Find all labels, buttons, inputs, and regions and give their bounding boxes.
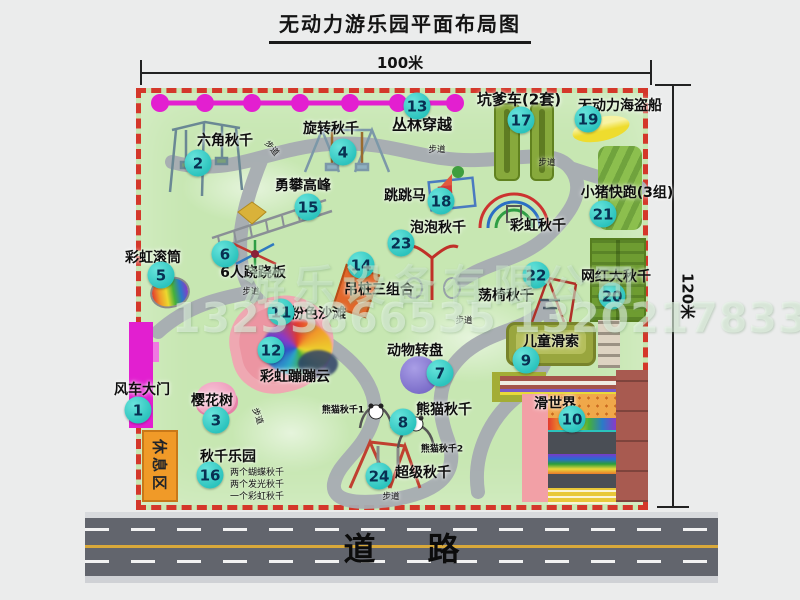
marker-22: 22 (523, 262, 550, 289)
marker-2: 2 (185, 150, 212, 177)
path-label: 步道 (382, 490, 399, 502)
rest-area-label: 休息区 (150, 439, 171, 493)
label-hanging-post-combo: 吊桩三组合 (344, 279, 414, 299)
label-rainbow-swing: 彩虹秋千 (510, 215, 566, 235)
marker-1: 1 (125, 397, 152, 424)
marker-15: 15 (295, 194, 322, 221)
label-rotary-swing: 旋转秋千 (303, 118, 359, 138)
path-label: 步道 (428, 143, 445, 155)
slide-world-icon (492, 370, 648, 502)
marker-10: 10 (559, 406, 586, 433)
label-rainbow-bounce-cloud: 彩虹蹦蹦云 (260, 366, 330, 386)
marker-23: 23 (388, 230, 415, 257)
label-windmill-gate: 风车大门 (114, 379, 170, 399)
path-label: 步道 (455, 314, 472, 326)
marker-4: 4 (330, 139, 357, 166)
swing-park-note-3: 一个彩虹秋千 (230, 489, 284, 502)
label-super-swing: 超级秋千 (395, 462, 451, 482)
marker-9: 9 (513, 347, 540, 374)
marker-18: 18 (428, 188, 455, 215)
path-label: 步道 (538, 156, 555, 168)
label-bubble-swing: 泡泡秋千 (410, 217, 466, 237)
playground-layout-map: 无动力游乐园平面布局图 100米 120米 (0, 0, 800, 600)
marker-12: 12 (258, 337, 285, 364)
windmill-gate-icon (153, 342, 159, 362)
kids-zipline-ladder-icon (598, 320, 620, 368)
label-peak-climbing: 勇攀高峰 (275, 175, 331, 195)
marker-3: 3 (203, 407, 230, 434)
marker-24: 24 (366, 463, 393, 490)
marker-20: 20 (599, 283, 626, 310)
marker-11: 11 (268, 299, 295, 326)
marker-19: 19 (575, 106, 602, 133)
path-label: 步道 (242, 285, 259, 297)
marker-6: 6 (212, 241, 239, 268)
label-panda-swing-1: 熊猫秋千1 (322, 403, 364, 416)
marker-14: 14 (348, 252, 375, 279)
marker-21: 21 (590, 201, 617, 228)
walkway-paths (0, 0, 800, 600)
marker-7: 7 (427, 360, 454, 387)
label-chair-swing: 荡椅秋千 (478, 285, 534, 305)
marker-13: 13 (404, 93, 431, 120)
marker-5: 5 (148, 262, 175, 289)
marker-16: 16 (197, 462, 224, 489)
label-pink-beach: 粉色沙滩 (290, 303, 346, 323)
marker-8: 8 (390, 409, 417, 436)
marker-17: 17 (508, 107, 535, 134)
label-piggy-run: 小猪快跑(3组) (581, 182, 674, 202)
label-animal-turntable: 动物转盘 (387, 340, 443, 360)
label-panda-swing-2: 熊猫秋千2 (421, 442, 463, 455)
bubble-swing-icon (406, 246, 460, 300)
label-jump-horse: 跳跳马 (384, 185, 426, 205)
label-panda-swing: 熊猫秋千 (416, 399, 472, 419)
label-hexagon-swing: 六角秋千 (197, 130, 253, 150)
